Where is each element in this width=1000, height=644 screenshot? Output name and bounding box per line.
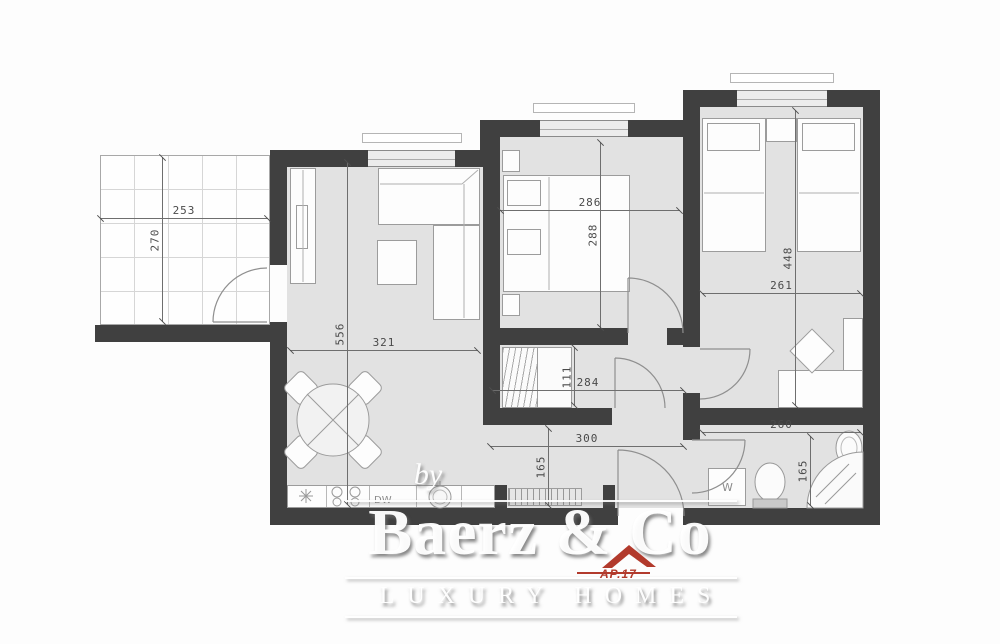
wall-right-outer: [863, 90, 880, 525]
wall-left-upper: [270, 150, 287, 265]
wall-bedroom2-top-left: [700, 90, 737, 107]
dim-bedroom2-width: 261: [702, 293, 861, 294]
dim-closet-depth: 111: [574, 347, 575, 406]
dim-bedroom1-depth: 288: [600, 142, 601, 328]
wall-bedroom1-bottom: [483, 328, 628, 345]
dim-label: 448: [782, 247, 795, 270]
nightstand: [766, 118, 797, 142]
wall-living-top-left: [270, 150, 368, 167]
watermark-rule-bottom: [345, 616, 737, 618]
dim-bedroom1-width: 286: [500, 210, 680, 211]
bedroom1-window: [540, 120, 628, 137]
watermark-by: by: [396, 458, 460, 492]
pillow: [707, 123, 760, 151]
dim-label: 165: [535, 456, 548, 479]
nightstand: [502, 294, 520, 316]
dim-label: 260: [770, 418, 793, 431]
dim-label: 284: [577, 376, 600, 389]
dim-label: 111: [561, 365, 574, 388]
dim-label: 300: [576, 432, 599, 445]
dim-hallway-length: 300: [490, 446, 684, 447]
bedroom2-window: [737, 90, 827, 107]
dim-terrace-depth: 270: [162, 157, 163, 322]
sofa-right-section: [433, 225, 480, 320]
wall-left-lower: [270, 322, 287, 525]
tv-cabinet-inner: [296, 205, 308, 249]
unit-code: AP.17: [600, 567, 637, 581]
living-window-sill: [362, 133, 462, 143]
wall-bedroom1-top-right: [628, 120, 683, 137]
dim-label: 321: [373, 336, 396, 349]
nightstand: [502, 150, 520, 172]
dim-terrace-width: 253: [100, 218, 268, 219]
wall-bedroom2-left-lower: [683, 393, 700, 440]
wall-bedroom2-left-upper: [683, 107, 700, 347]
sofa-top-section: [378, 168, 480, 225]
washing-machine-label: W: [722, 481, 733, 494]
pillow: [507, 229, 541, 255]
dim-label: 253: [173, 204, 196, 217]
pillow: [802, 123, 855, 151]
coffee-table: [377, 240, 417, 285]
dim-living-depth: 556: [347, 162, 348, 505]
floor-plan-canvas: DW W: [0, 0, 1000, 644]
dim-label: 261: [770, 279, 793, 292]
dim-bedroom2-depth: 448: [795, 110, 796, 406]
watermark-tagline: LUXURY HOMES: [345, 583, 745, 610]
dim-label: 270: [149, 228, 162, 251]
wall-closet-bottom: [483, 408, 612, 425]
dim-label: 556: [334, 322, 347, 345]
dim-hallway-depth: 165: [548, 428, 549, 506]
dim-living-width: 321: [290, 350, 478, 351]
terrace-tiles: [100, 155, 270, 325]
watermark-rule-middle: [345, 577, 737, 579]
watermark-brand: Baerz & Co: [340, 500, 740, 566]
roof-logo-icon: [600, 543, 658, 570]
wall-terrace-bottom: [95, 325, 270, 342]
dim-hallway-width: 284: [492, 390, 684, 391]
dim-bathroom-width: 260: [702, 432, 861, 433]
living-window: [368, 150, 455, 167]
bedroom1-window-sill: [533, 103, 635, 113]
wall-living-bedroom1-divider: [483, 137, 500, 425]
dim-label: 286: [579, 196, 602, 209]
bedroom2-window-sill: [730, 73, 834, 83]
dim-label: 165: [797, 460, 810, 483]
dim-label: 288: [587, 224, 600, 247]
dim-bathroom-depth: 165: [810, 436, 811, 506]
hall-closet-hanging-section: [503, 348, 538, 407]
pillow: [507, 180, 541, 206]
wall-bedroom1-top-left: [497, 120, 540, 137]
